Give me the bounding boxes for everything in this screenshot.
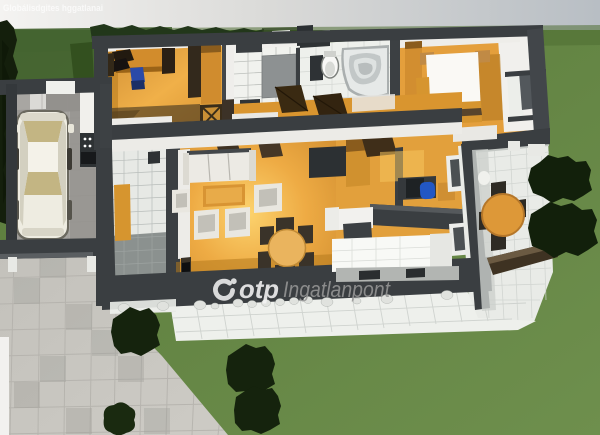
svg-text:Globálisdgites hggatlanai: Globálisdgites hggatlanai: [3, 3, 103, 14]
svg-text:Ingatlanpont: Ingatlanpont: [283, 277, 391, 302]
svg-text:otp: otp: [239, 274, 279, 304]
